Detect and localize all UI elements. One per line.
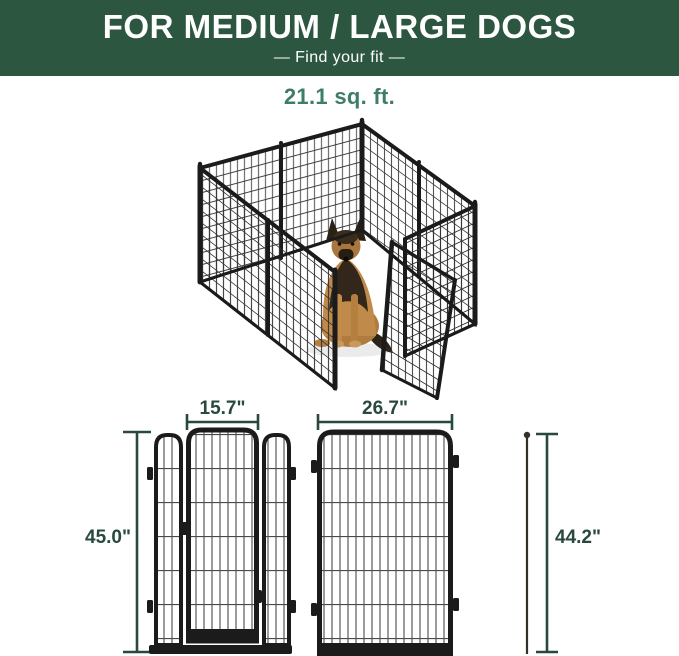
door-panel-height-label: 45.0" (85, 527, 131, 548)
wide-panel-width-dimension: 26.7" (318, 400, 452, 430)
door-panel-width-label: 15.7" (200, 400, 246, 419)
product-image (150, 110, 530, 400)
wide-panel-height-dimension: 44.2" (536, 434, 601, 652)
ground-stake (524, 432, 530, 654)
banner: FOR MEDIUM / LARGE DOGS — Find your fit … (0, 0, 679, 76)
wide-panel-height-label: 44.2" (555, 527, 601, 548)
banner-subtitle: — Find your fit — (274, 47, 405, 68)
wide-panel-width-label: 26.7" (362, 400, 408, 419)
door-panel-height-dimension: 45.0" (85, 432, 151, 652)
door-panel-diagram: 45.0" 15.7" (85, 400, 296, 654)
door-panel-width-dimension: 15.7" (187, 400, 258, 430)
dimension-diagram: 45.0" 15.7" (0, 400, 679, 656)
banner-title: FOR MEDIUM / LARGE DOGS (103, 8, 577, 46)
area-label: 21.1 sq. ft. (0, 84, 679, 110)
wide-panel-diagram: 26.7" 44.2" (311, 400, 601, 655)
infographic-page: FOR MEDIUM / LARGE DOGS — Find your fit … (0, 0, 679, 656)
